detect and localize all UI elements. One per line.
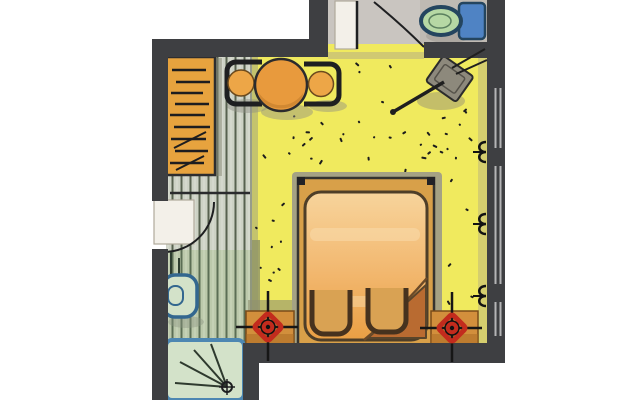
passage-shadow <box>328 52 424 59</box>
tv-arm-joint <box>390 109 396 115</box>
wc-room <box>326 0 487 49</box>
wall-left-lower <box>152 249 168 400</box>
wardrobe <box>165 57 222 176</box>
footstool-right <box>368 288 406 332</box>
speckle <box>273 271 275 273</box>
wall-wc-left <box>309 0 328 46</box>
wall-top-left <box>152 39 328 57</box>
footstool-left <box>312 290 350 334</box>
floor-plan <box>0 0 640 400</box>
speckle <box>292 136 294 139</box>
armchair-left-seat <box>228 70 254 96</box>
wall-left-upper <box>152 39 168 201</box>
speckle <box>455 157 457 160</box>
wall-bottom <box>243 343 505 363</box>
speckle <box>306 131 310 133</box>
shower-tray <box>166 340 244 400</box>
bed-corner-post-right <box>427 177 435 185</box>
bed-group <box>292 172 442 348</box>
armchair-right-seat <box>309 72 334 97</box>
duvet-fold-highlight <box>310 228 420 241</box>
round-table <box>255 59 307 111</box>
toilet-bowl <box>421 7 461 35</box>
wc-door-leaf <box>335 1 357 49</box>
wall-shower-right <box>243 343 259 400</box>
speckle <box>310 158 313 160</box>
bed-corner-post-left <box>297 177 305 185</box>
entrance-door-leaf <box>154 200 194 244</box>
